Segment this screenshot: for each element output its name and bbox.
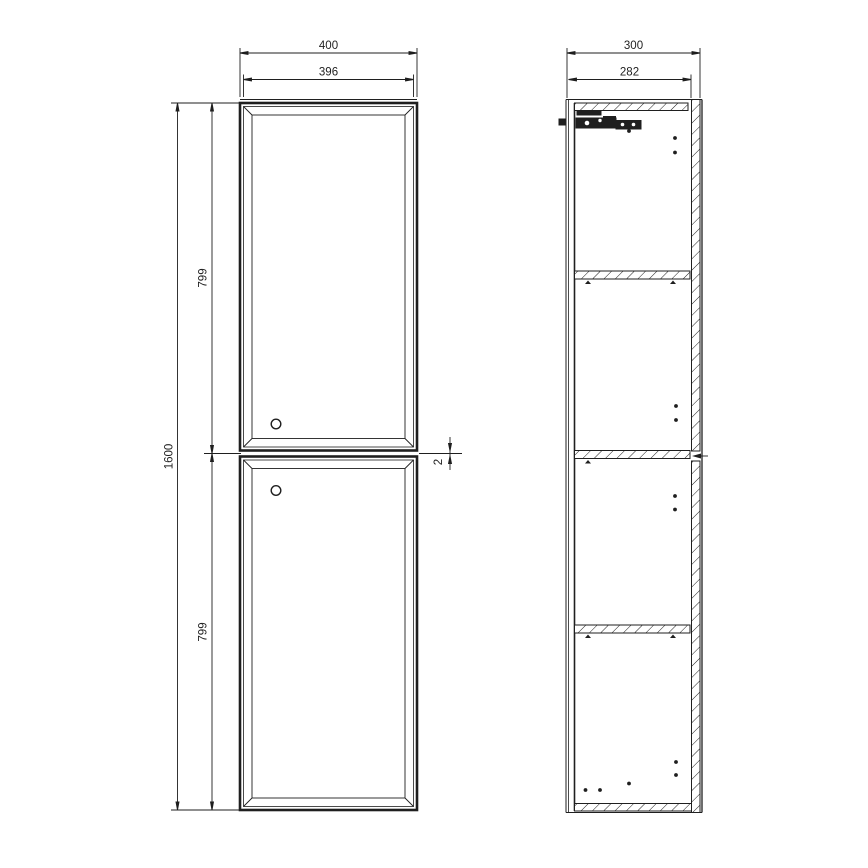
- bracket-tab: [603, 116, 616, 121]
- drill-hole: [673, 151, 677, 155]
- bracket-screw-hole: [598, 119, 601, 122]
- drill-hole: [673, 494, 677, 498]
- bracket-wall-hook: [559, 119, 567, 126]
- shelf-1: [575, 271, 691, 279]
- top-panel: [575, 103, 689, 111]
- drill-hole: [674, 760, 678, 764]
- bracket-screw-hole: [632, 123, 636, 127]
- upper-door: [240, 103, 417, 451]
- technical-drawing: 400 396 1600 799 799: [0, 0, 868, 868]
- bracket-rail: [577, 111, 602, 116]
- drill-hole: [598, 788, 602, 792]
- drawing-canvas: 400 396 1600 799 799: [0, 0, 868, 868]
- dim-label-overall-width: 400: [319, 40, 338, 52]
- drill-hole: [674, 404, 678, 408]
- dim-label-inner-depth: 282: [620, 67, 639, 79]
- lower-door-section: [692, 461, 701, 813]
- drill-hole: [627, 782, 631, 786]
- bottom-panel: [575, 804, 692, 812]
- bracket-screw-hole: [621, 123, 625, 127]
- drill-hole: [673, 136, 677, 140]
- drill-hole: [673, 508, 677, 512]
- drill-hole: [627, 129, 631, 133]
- shelf-2: [575, 451, 691, 459]
- bracket-arm: [616, 120, 642, 130]
- drill-hole: [674, 418, 678, 422]
- bracket-screw-hole: [585, 121, 590, 126]
- lower-door-outline: [240, 457, 417, 811]
- dim-label-overall-height: 1600: [164, 444, 176, 470]
- shelf-3: [575, 625, 691, 633]
- dim-label-overall-depth: 300: [624, 40, 643, 52]
- dim-label-upper-door-height: 799: [198, 268, 210, 287]
- page-background: [0, 0, 868, 868]
- dim-label-door-width: 396: [319, 67, 338, 79]
- dim-label-lower-door-height: 799: [198, 622, 210, 641]
- drill-hole: [674, 773, 678, 777]
- upper-door-section: [692, 100, 701, 452]
- upper-door-outline: [240, 103, 417, 451]
- dim-label-door-gap: 2: [433, 459, 445, 465]
- drill-hole: [584, 788, 588, 792]
- lower-door: [240, 457, 417, 811]
